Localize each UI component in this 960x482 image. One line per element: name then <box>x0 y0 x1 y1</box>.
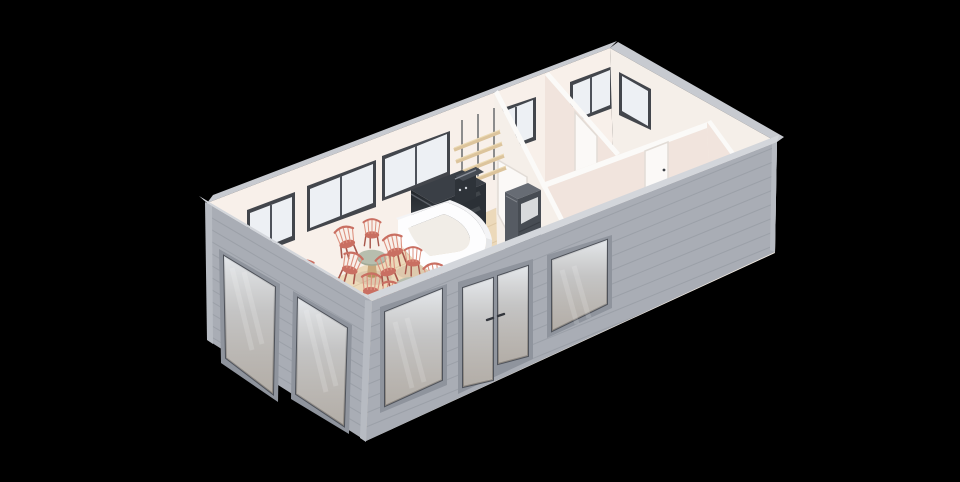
screenshot-canvas: Isometric 3D render of a cafe floor plan… <box>0 0 960 482</box>
floorplan-render: Isometric 3D render of a cafe floor plan… <box>0 0 960 482</box>
